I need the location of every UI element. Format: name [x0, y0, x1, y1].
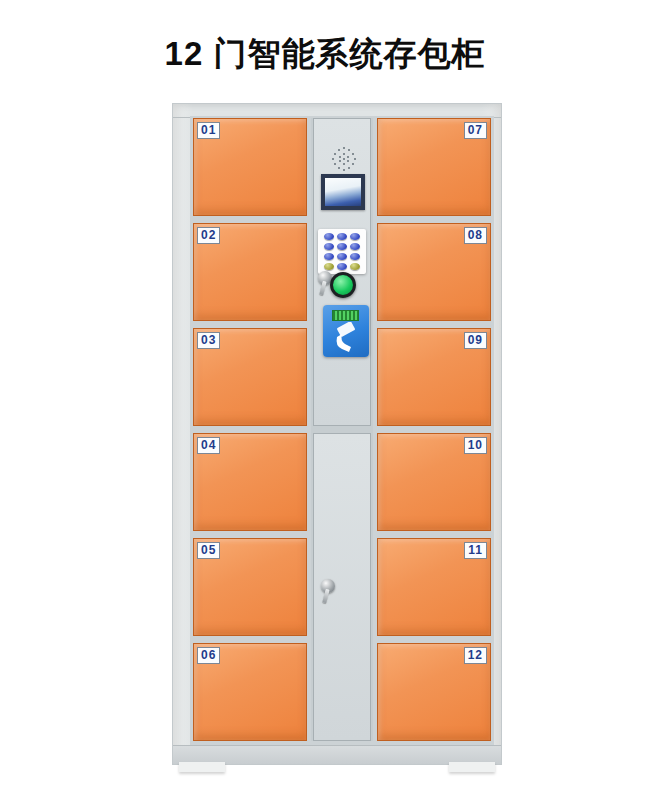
locker-door-04[interactable]: 04	[193, 433, 307, 531]
speaker-grill-icon	[343, 158, 345, 160]
door-number-label: 08	[464, 227, 487, 244]
locker-door-01[interactable]: 01	[193, 118, 307, 216]
keypad-key[interactable]	[337, 233, 347, 240]
keypad-key[interactable]	[350, 233, 360, 240]
keypad-key-hash[interactable]	[350, 263, 360, 270]
card-swipe-hand-icon	[332, 322, 360, 354]
door-number-label: 02	[197, 227, 220, 244]
door-number-label: 10	[464, 437, 487, 454]
reader-mini-display	[332, 310, 359, 321]
locker-door-08[interactable]: 08	[377, 223, 491, 321]
door-number-label: 05	[197, 542, 220, 559]
keypad-key[interactable]	[324, 253, 334, 260]
locker-door-09[interactable]: 09	[377, 328, 491, 426]
keypad-key-star[interactable]	[324, 263, 334, 270]
page-title: 12 门智能系统存包柜	[0, 32, 650, 77]
locker-door-05[interactable]: 05	[193, 538, 307, 636]
door-number-label: 11	[464, 542, 487, 559]
locker-door-02[interactable]: 02	[193, 223, 307, 321]
numeric-keypad	[318, 229, 366, 274]
door-number-label: 06	[197, 647, 220, 664]
keypad-key[interactable]	[324, 243, 334, 250]
keypad-key[interactable]	[337, 253, 347, 260]
cabinet-foot-right	[449, 762, 495, 772]
locker-door-12[interactable]: 12	[377, 643, 491, 741]
locker-door-03[interactable]: 03	[193, 328, 307, 426]
control-panel	[313, 118, 371, 426]
locker-door-07[interactable]: 07	[377, 118, 491, 216]
door-number-label: 09	[464, 332, 487, 349]
key-icon	[322, 589, 329, 604]
lcd-display	[321, 174, 365, 210]
center-lower-door[interactable]	[313, 433, 371, 741]
cabinet-foot-left	[179, 762, 225, 772]
locker-door-11[interactable]: 11	[377, 538, 491, 636]
keypad-key[interactable]	[337, 243, 347, 250]
locker-door-10[interactable]: 10	[377, 433, 491, 531]
rfid-card-reader[interactable]	[323, 305, 369, 357]
locker-door-06[interactable]: 06	[193, 643, 307, 741]
keypad-key[interactable]	[350, 243, 360, 250]
door-number-label: 12	[464, 647, 487, 664]
product-photo-scene: 12 门智能系统存包柜 01 02 03 04 05 06 07 08 09 1…	[0, 0, 650, 790]
door-number-label: 01	[197, 122, 220, 139]
keypad-key[interactable]	[350, 253, 360, 260]
lcd-screen	[325, 178, 361, 206]
control-column	[311, 118, 373, 741]
locker-cabinet: 01 02 03 04 05 06 07 08 09 10 11 12	[172, 103, 502, 765]
door-number-label: 03	[197, 332, 220, 349]
keypad-key[interactable]	[324, 233, 334, 240]
keypad-key[interactable]	[337, 263, 347, 270]
key-lock-lower[interactable]	[321, 579, 335, 593]
door-number-label: 04	[197, 437, 220, 454]
key-icon	[319, 281, 326, 296]
confirm-green-button[interactable]	[330, 272, 356, 298]
door-number-label: 07	[464, 122, 487, 139]
